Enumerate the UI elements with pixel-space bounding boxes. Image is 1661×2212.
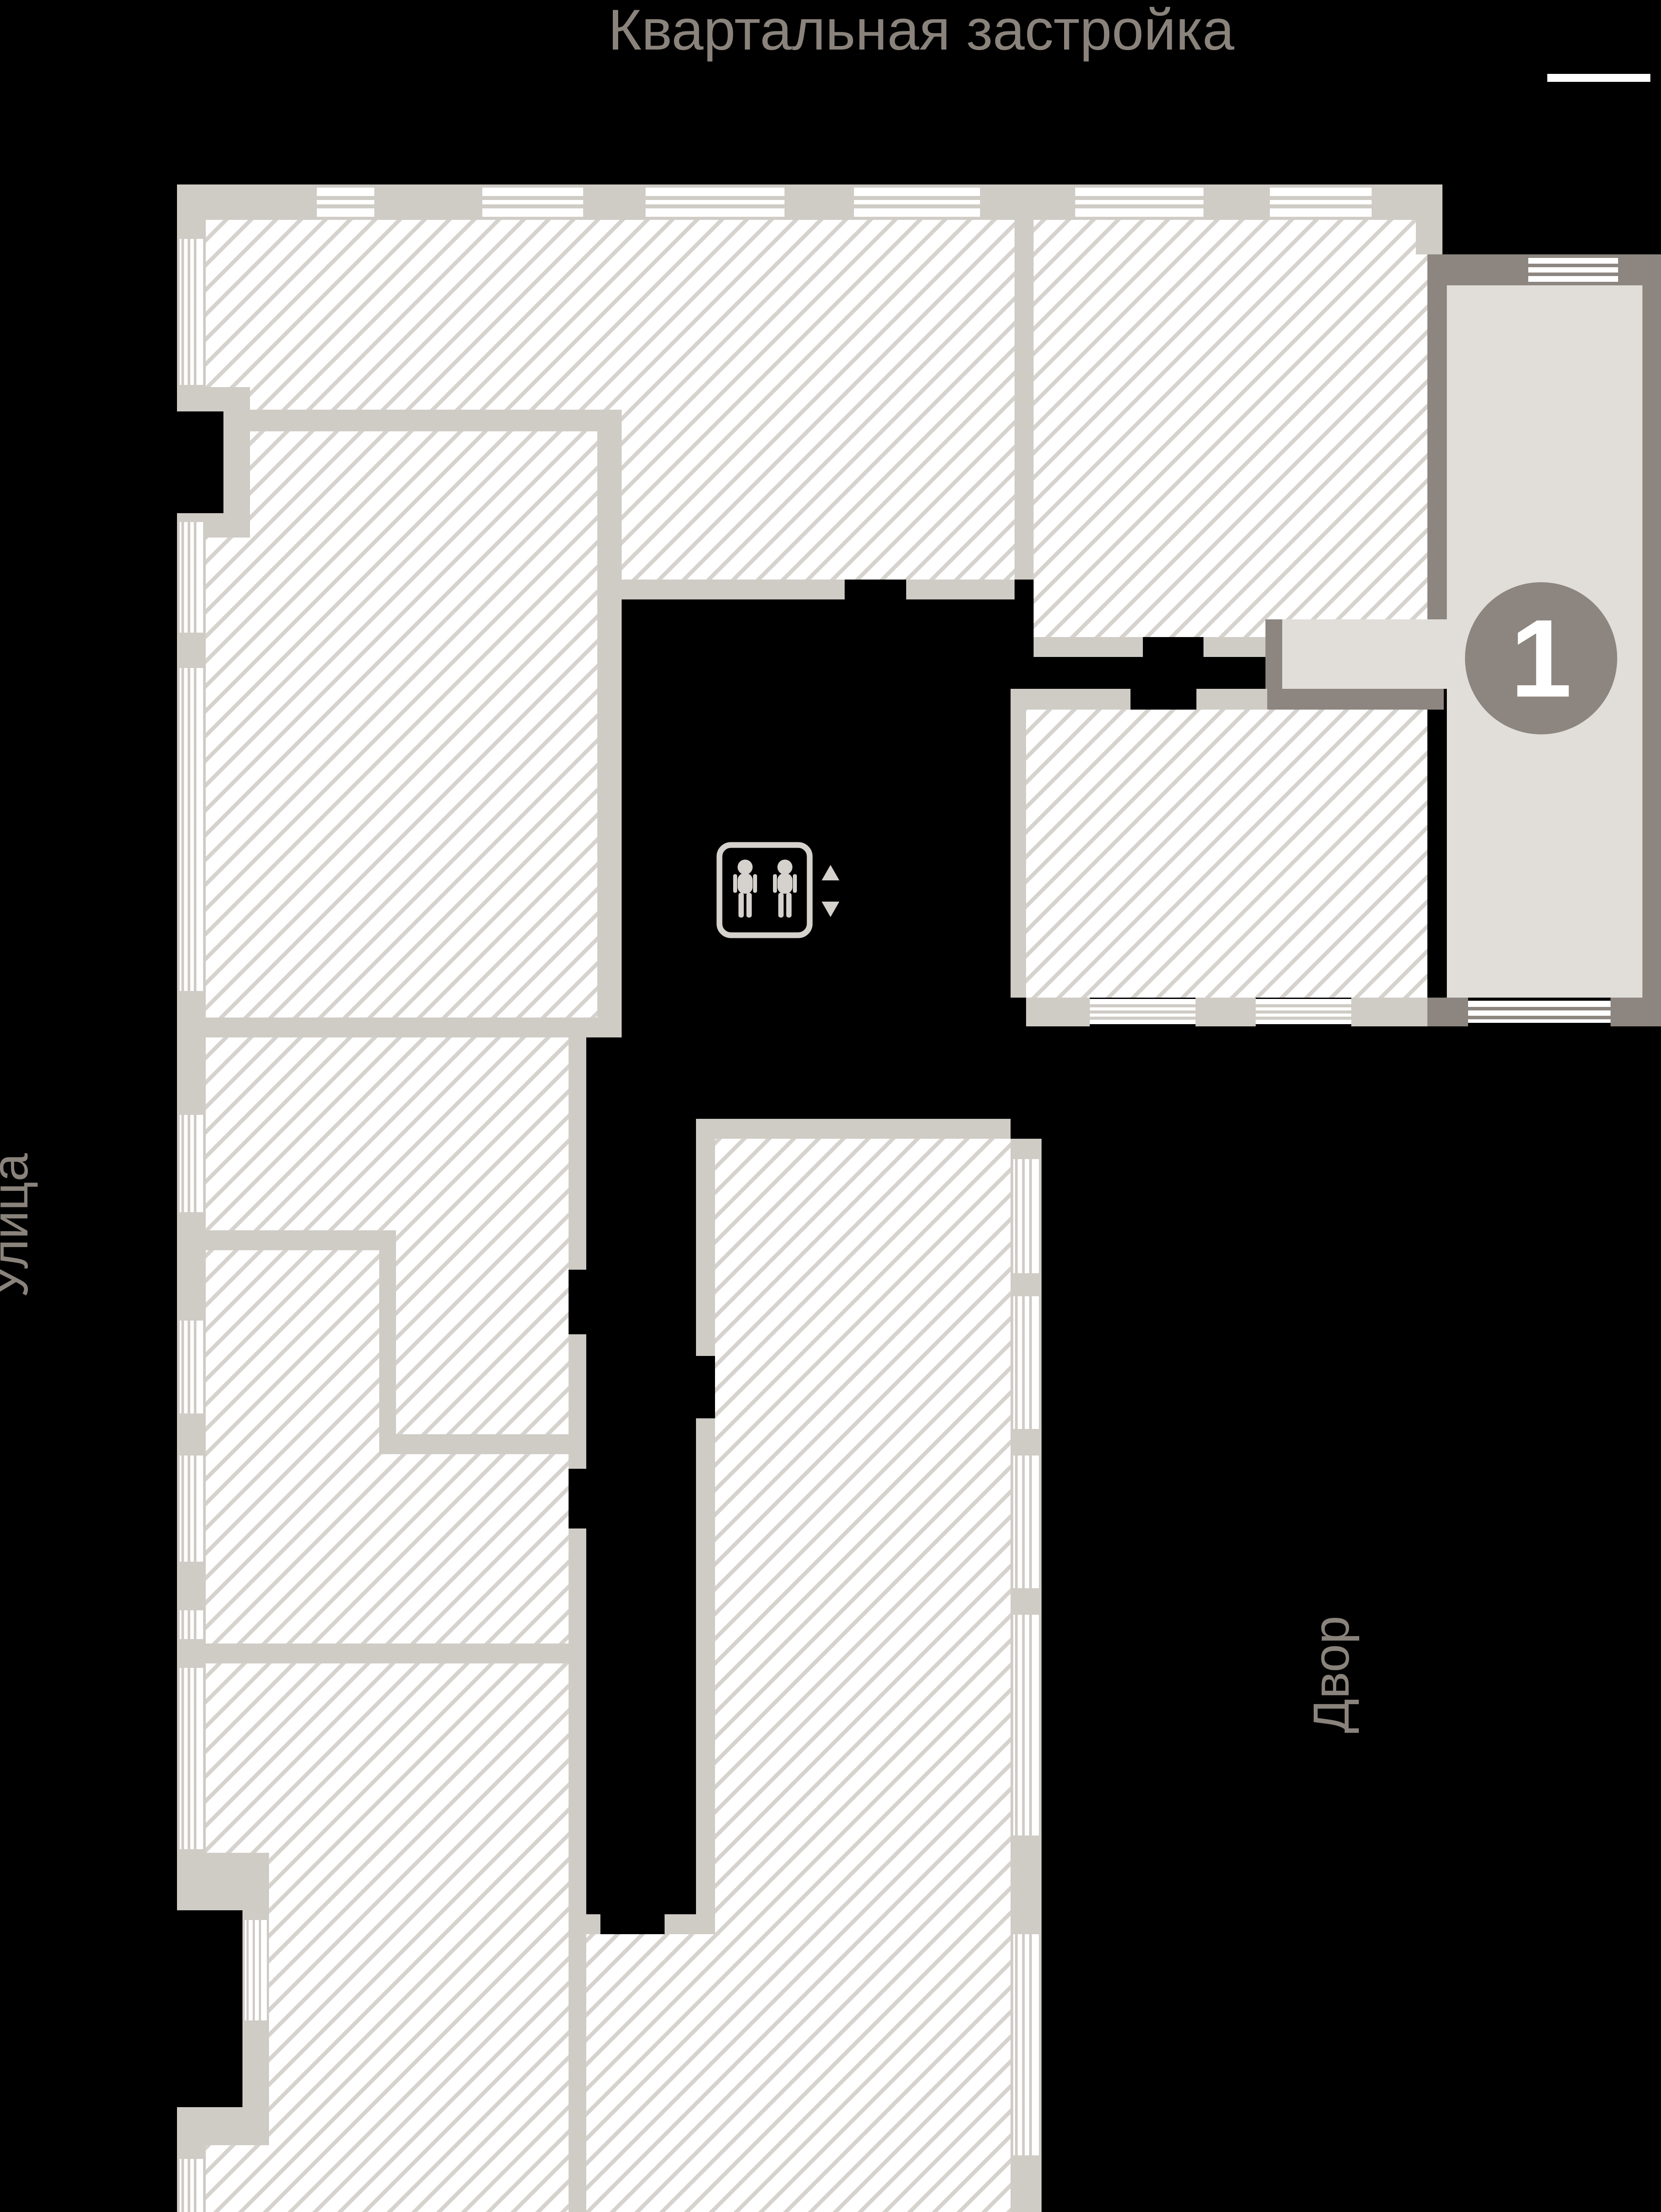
vestibule-south-window [1468,1001,1611,1023]
apartment-top-right[interactable] [1034,220,1427,637]
floor-plan-svg: 1 Квартальная застройка Улица Двор [0,0,1661,2212]
street-label: Улица [0,1153,38,1298]
entrance-badge: 1 [1465,582,1617,734]
vestibule-north-window [1528,258,1618,282]
floor-plan-page: 1 Квартальная застройка Улица Двор [0,0,1661,2212]
middle-room-east-windows [1013,1159,1039,2155]
apartment-left-2[interactable] [206,431,597,1018]
block-development-label: Квартальная застройка [608,0,1234,62]
apartment-right-2[interactable] [1026,710,1427,998]
courtyard-label: Двор [1303,1616,1360,1733]
entrance-badge-number: 1 [1510,597,1572,720]
porch-edge-line [1547,74,1650,82]
